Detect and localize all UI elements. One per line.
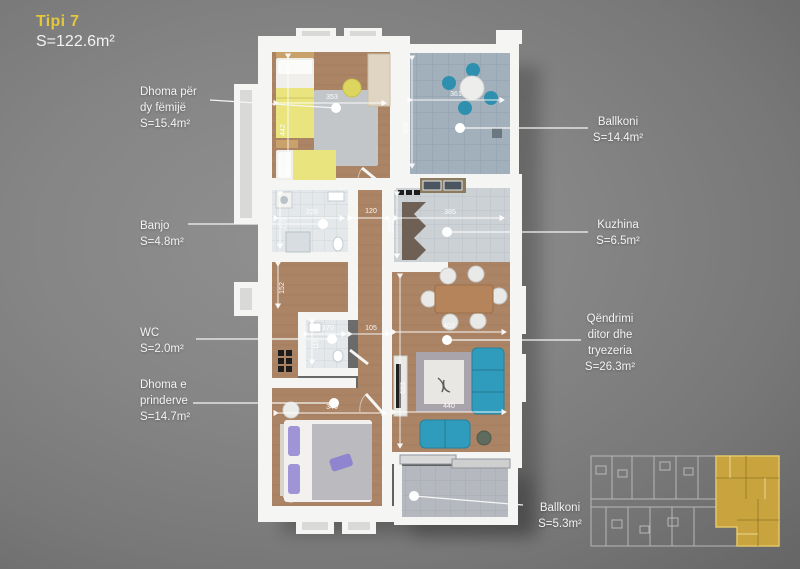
minimap: [591, 456, 779, 546]
dim-kitchen-h: 203: [388, 220, 395, 232]
dim-wc-gap: 105: [365, 325, 377, 332]
dim-living-w2: 440: [443, 403, 455, 410]
sofa-vertical: [472, 348, 504, 414]
label-parents: Dhoma e prinderve S=14.7m²: [140, 377, 190, 425]
label-parents-area: S=14.7m²: [140, 409, 190, 425]
label-balcony-bottom: Ballkoni S=5.3m²: [518, 500, 602, 532]
label-wc-area: S=2.0m²: [140, 341, 184, 357]
floorplan-poster: 353 442 361 398 385 203 228 210 120 152 …: [0, 0, 800, 569]
label-balcony-top-name: Ballkoni: [578, 114, 658, 130]
dim-balcony-h: 398: [403, 122, 410, 134]
label-balcony-bottom-name: Ballkoni: [518, 500, 602, 516]
dim-hall-w: 120: [365, 208, 377, 215]
dim-children-w: 353: [326, 94, 338, 101]
dim-bath-w: 228: [306, 209, 318, 216]
label-wc: WC S=2.0m²: [140, 325, 184, 357]
label-children-area: S=15.4m²: [140, 116, 197, 132]
label-living-area: S=26.3m²: [568, 359, 652, 375]
label-balcony-top-area: S=14.4m²: [578, 130, 658, 146]
label-bath-area: S=4.8m²: [140, 234, 184, 250]
label-living-name: Qëndrimi ditor dhe tryezeria: [568, 311, 652, 359]
children-wardrobe: [368, 54, 390, 106]
label-bath-name: Banjo: [140, 218, 184, 234]
label-wc-name: WC: [140, 325, 184, 341]
label-living: Qëndrimi ditor dhe tryezeria S=26.3m²: [568, 311, 652, 375]
label-kitchen: Kuzhina S=6.5m²: [578, 217, 658, 249]
label-balcony-bottom-area: S=5.3m²: [518, 516, 602, 532]
balcony-side-table: [492, 128, 502, 138]
children-pouf: [343, 79, 361, 97]
label-parents-name: Dhoma e prinderve: [140, 377, 190, 409]
dim-children-h: 442: [280, 124, 287, 136]
children-nightstand: [276, 140, 298, 148]
room-balcony-top-floor: [406, 52, 510, 174]
dim-living-h: 623: [400, 382, 407, 394]
label-bath: Banjo S=4.8m²: [140, 218, 184, 250]
plan-type: Tipi 7: [36, 12, 115, 32]
floor-plan-rendering: 353 442 361 398 385 203 228 210 120 152 …: [0, 0, 800, 569]
entry-shoe-row: [398, 190, 420, 195]
dim-wc-h: 118: [313, 338, 320, 349]
minimap-unit-highlight: [716, 456, 779, 546]
sofa-horizontal: [420, 420, 470, 448]
plan-total-area: S=122.6m²: [36, 32, 115, 52]
plant: [477, 431, 491, 445]
label-children: Dhoma për dy fëmijë S=15.4m²: [140, 84, 197, 132]
dim-kitchen-w: 385: [444, 209, 456, 216]
kitchen-window: [420, 178, 466, 193]
label-balcony-top: Ballkoni S=14.4m²: [578, 114, 658, 146]
dim-wc-w: 170: [322, 325, 334, 332]
plan-title: Tipi 7 S=122.6m²: [36, 12, 115, 52]
label-children-name: Dhoma për dy fëmijë: [140, 84, 197, 116]
dim-hall-h: 152: [279, 282, 286, 294]
label-kitchen-area: S=6.5m²: [578, 233, 658, 249]
dim-balcony-w: 361: [450, 91, 462, 98]
dim-living-w: 402: [443, 323, 455, 330]
label-kitchen-name: Kuzhina: [578, 217, 658, 233]
children-bed-2: [276, 150, 336, 180]
